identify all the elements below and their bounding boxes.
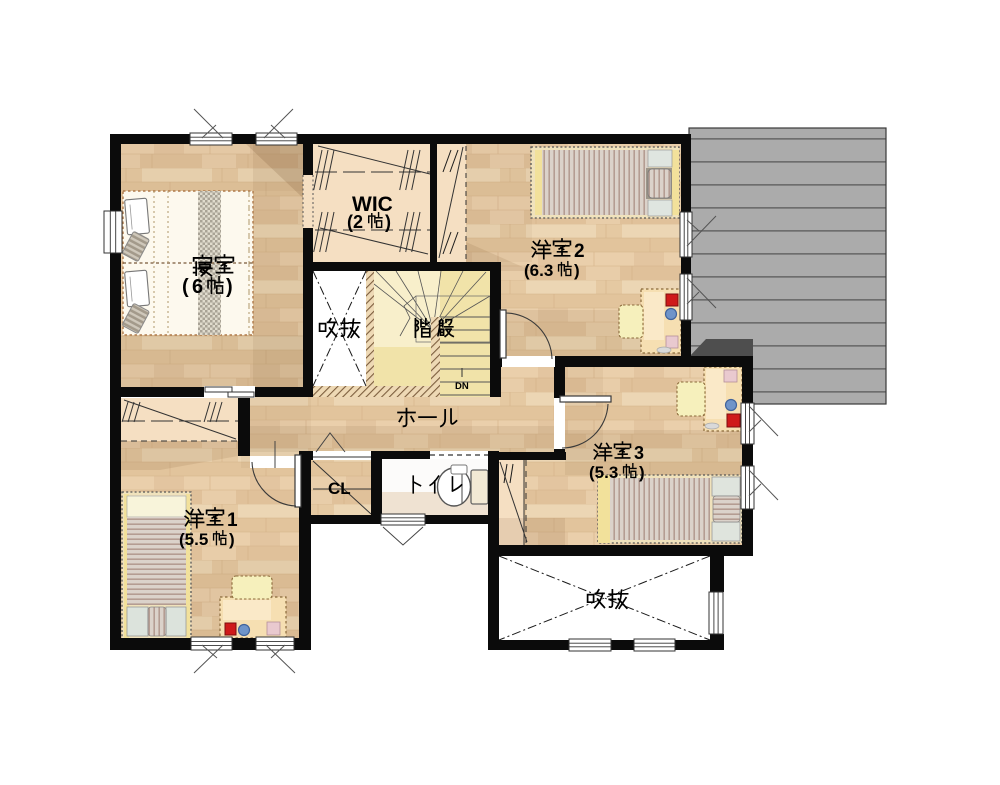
svg-text:1: 1	[227, 510, 238, 531]
svg-text:(2: (2	[347, 212, 363, 232]
svg-text:(: (	[182, 276, 189, 298]
svg-text:): )	[574, 261, 580, 280]
svg-text:CL: CL	[328, 479, 351, 498]
svg-text:(5.3: (5.3	[589, 463, 618, 482]
svg-text:3: 3	[634, 443, 644, 463]
svg-text:(5.5: (5.5	[179, 530, 208, 549]
svg-text:): )	[639, 463, 645, 482]
svg-text:): )	[226, 276, 233, 298]
svg-text:6: 6	[192, 276, 203, 298]
svg-text:(6.3: (6.3	[524, 261, 553, 280]
svg-text:DN: DN	[455, 381, 469, 392]
svg-text:): )	[229, 530, 235, 549]
svg-text:): )	[385, 212, 391, 232]
svg-text:2: 2	[574, 241, 585, 262]
